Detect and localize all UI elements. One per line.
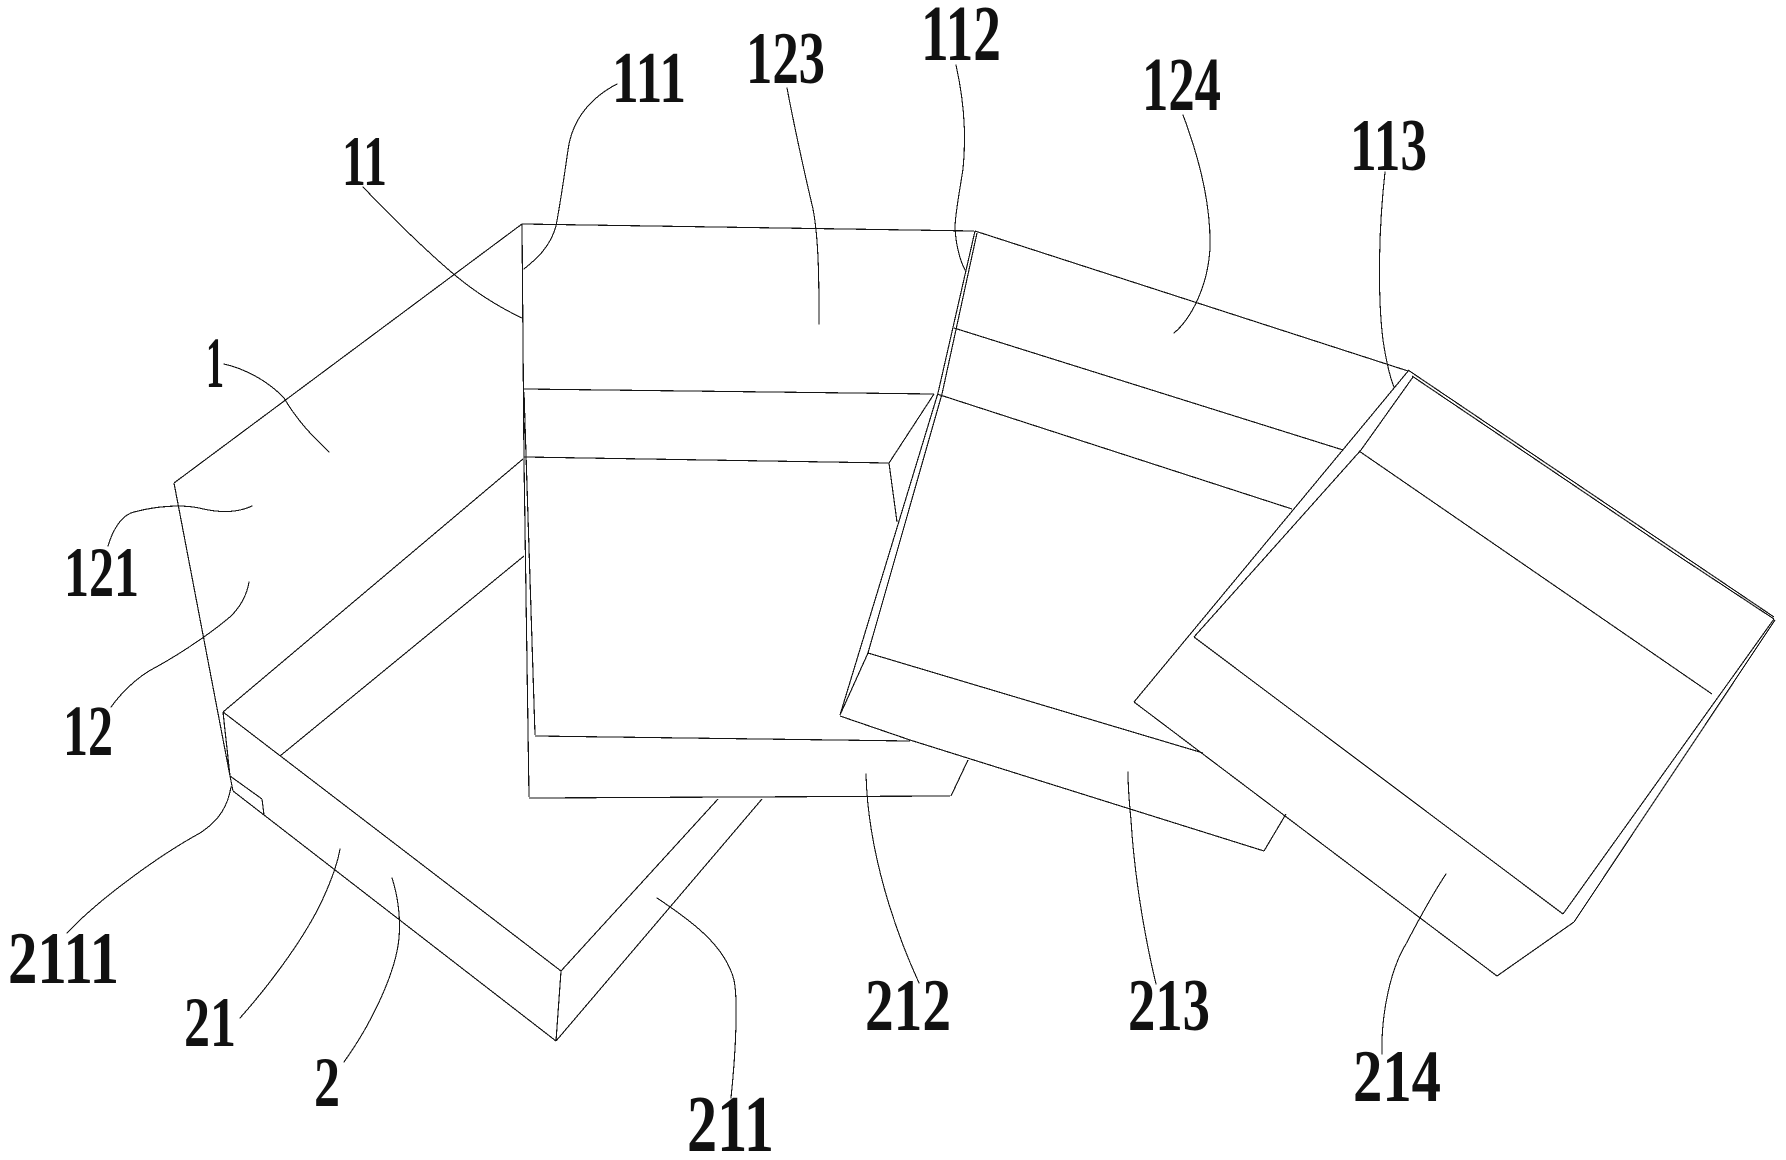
svg-text:124: 124: [1142, 43, 1221, 127]
svg-text:213: 213: [1128, 965, 1210, 1047]
svg-text:12: 12: [63, 691, 113, 771]
svg-text:211: 211: [687, 1081, 774, 1160]
svg-text:1: 1: [206, 323, 224, 403]
svg-text:214: 214: [1353, 1036, 1441, 1118]
svg-text:121: 121: [64, 534, 139, 612]
svg-text:21: 21: [184, 984, 236, 1062]
svg-text:111: 111: [612, 37, 686, 118]
svg-text:123: 123: [746, 18, 825, 100]
svg-text:2111: 2111: [8, 918, 119, 1000]
svg-text:11: 11: [342, 123, 387, 201]
svg-text:2: 2: [314, 1044, 340, 1122]
svg-text:212: 212: [865, 965, 951, 1047]
svg-text:112: 112: [921, 0, 1001, 78]
svg-text:113: 113: [1350, 105, 1427, 187]
